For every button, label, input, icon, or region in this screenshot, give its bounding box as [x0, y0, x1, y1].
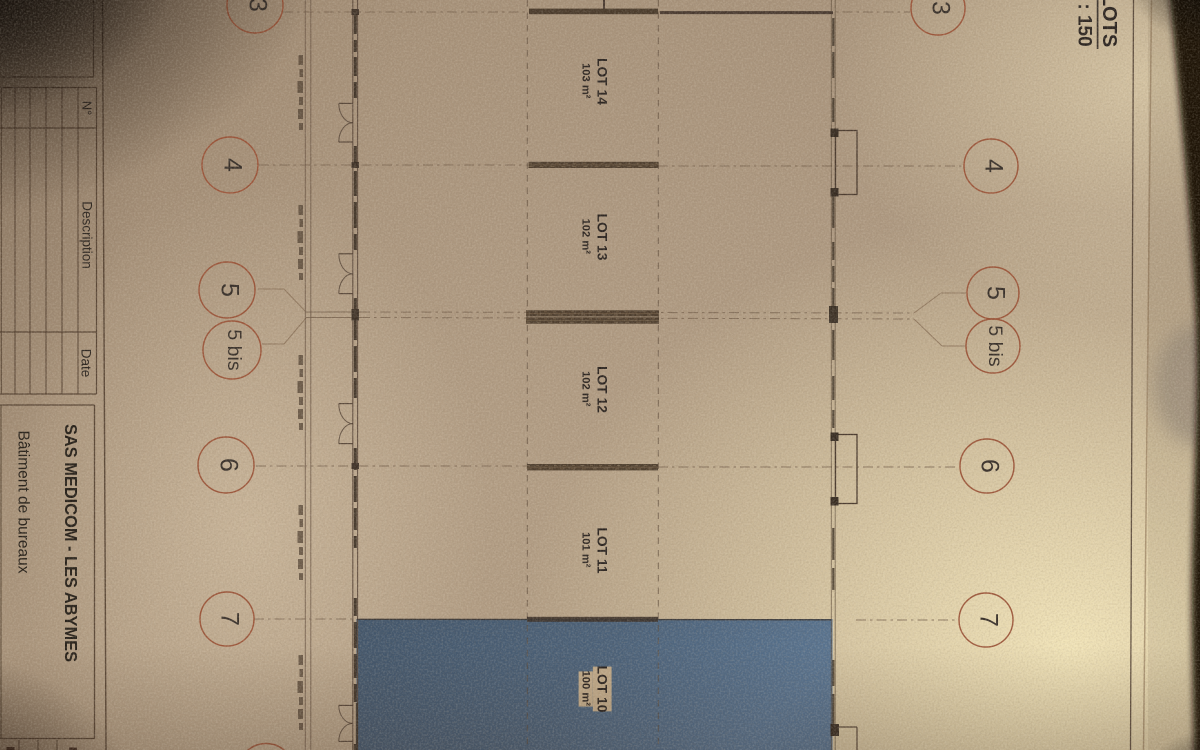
svg-text:100 m²: 100 m² — [580, 671, 592, 707]
svg-text:7: 7 — [215, 612, 243, 626]
svg-text:102 m²: 102 m² — [580, 219, 592, 255]
svg-text:5: 5 — [981, 286, 1009, 300]
svg-text:LOTS: LOTS — [1098, 0, 1120, 47]
svg-text:5 bis: 5 bis — [223, 329, 245, 370]
svg-text:LOT 12: LOT 12 — [595, 366, 610, 413]
svg-text:SAS MEDICOM - LES ABYMES: SAS MEDICOM - LES ABYMES — [61, 424, 81, 662]
svg-text:LOT 10: LOT 10 — [595, 666, 610, 713]
svg-text:LOT 13: LOT 13 — [595, 214, 610, 261]
svg-text:4: 4 — [979, 159, 1007, 173]
svg-text:5 bis: 5 bis — [984, 325, 1006, 366]
svg-text:102 m²: 102 m² — [580, 371, 592, 407]
svg-text:N°: N° — [80, 101, 95, 116]
svg-text:6: 6 — [975, 459, 1003, 473]
svg-text:3: 3 — [926, 1, 954, 15]
svg-text:Bâtiment de bureaux: Bâtiment de bureaux — [14, 430, 31, 573]
svg-text:LOT 11: LOT 11 — [595, 527, 610, 573]
svg-text:Date: Date — [78, 349, 93, 378]
svg-text:7: 7 — [974, 613, 1002, 627]
svg-text:LOT 14: LOT 14 — [595, 58, 610, 105]
svg-text:5: 5 — [215, 283, 243, 297]
svg-text:3: 3 — [243, 0, 271, 12]
svg-text:101 m²: 101 m² — [580, 532, 592, 568]
svg-text:4: 4 — [218, 158, 246, 172]
svg-text:103 m²: 103 m² — [580, 63, 592, 99]
svg-text:: 150: : 150 — [1073, 3, 1094, 46]
svg-text:Description: Description — [79, 201, 94, 269]
svg-text:6: 6 — [214, 458, 242, 472]
